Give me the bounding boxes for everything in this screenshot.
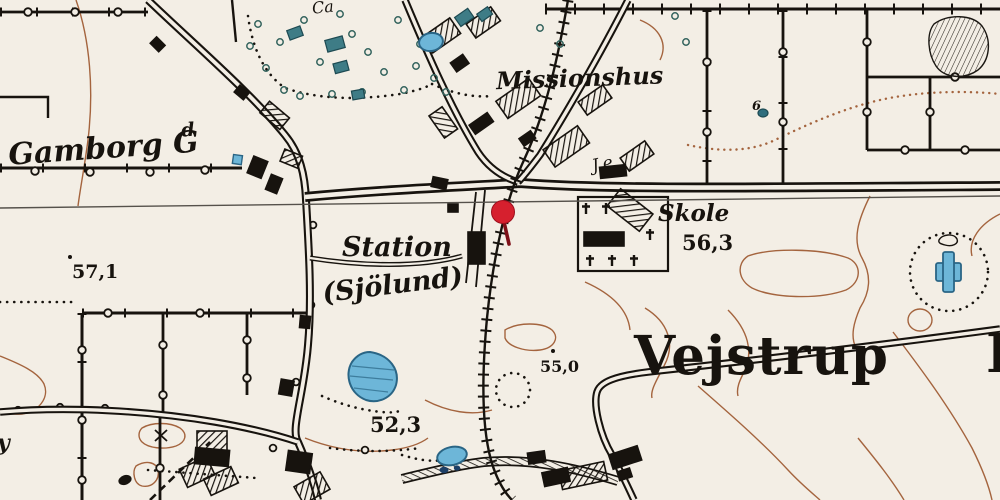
well [232,154,242,164]
label-missionshus: Missionshus [495,60,665,95]
marsh-area [929,17,988,77]
label-elev-571: 57,1 [72,261,118,283]
label-station: Station [342,232,452,263]
map-canvas[interactable]: Gamborg G d Missionshus Station (Sjölund… [0,0,1000,500]
label-elev-550: 55,0 [540,357,579,376]
elev-dot-550 [551,349,555,353]
historical-map[interactable]: Gamborg G d Missionshus Station (Sjölund… [0,0,1000,500]
label-elev-563: 56,3 [682,230,733,255]
label-vejstrup-partial: B [986,323,1000,385]
label-ca: Ca [311,0,335,18]
label-skole: Skole [658,200,729,227]
label-vejstrup: Vejstrup [633,325,889,387]
elev-dot-571 [68,255,72,259]
label-gamborg-sup: d [180,119,195,142]
label-elev-523: 52,3 [370,412,421,437]
label-parcel-6: 6 [752,99,761,114]
